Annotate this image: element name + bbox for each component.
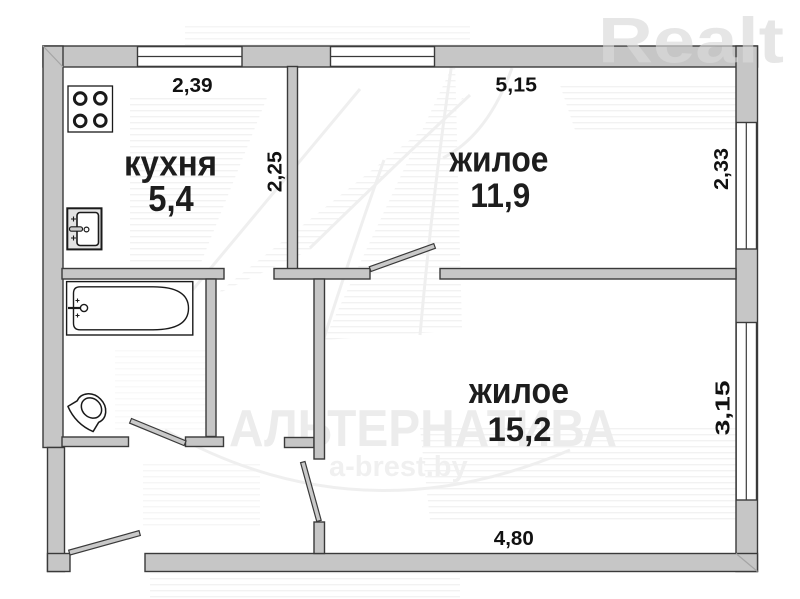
svg-text:15,2: 15,2: [488, 411, 552, 449]
svg-text:2,25: 2,25: [265, 151, 287, 192]
svg-text:11,9: 11,9: [470, 177, 530, 215]
svg-text:a-brest.by: a-brest.by: [329, 451, 468, 483]
svg-text:3,15: 3,15: [713, 380, 735, 435]
svg-text:2,33: 2,33: [711, 148, 733, 190]
svg-text:Realt: Realt: [598, 5, 784, 77]
svg-text:жилое: жилое: [468, 370, 569, 411]
svg-text:5,4: 5,4: [148, 178, 194, 219]
svg-text:жилое: жилое: [449, 138, 549, 179]
svg-text:4,80: 4,80: [494, 528, 534, 550]
svg-text:2,39: 2,39: [172, 75, 213, 97]
svg-text:5,15: 5,15: [495, 74, 537, 96]
